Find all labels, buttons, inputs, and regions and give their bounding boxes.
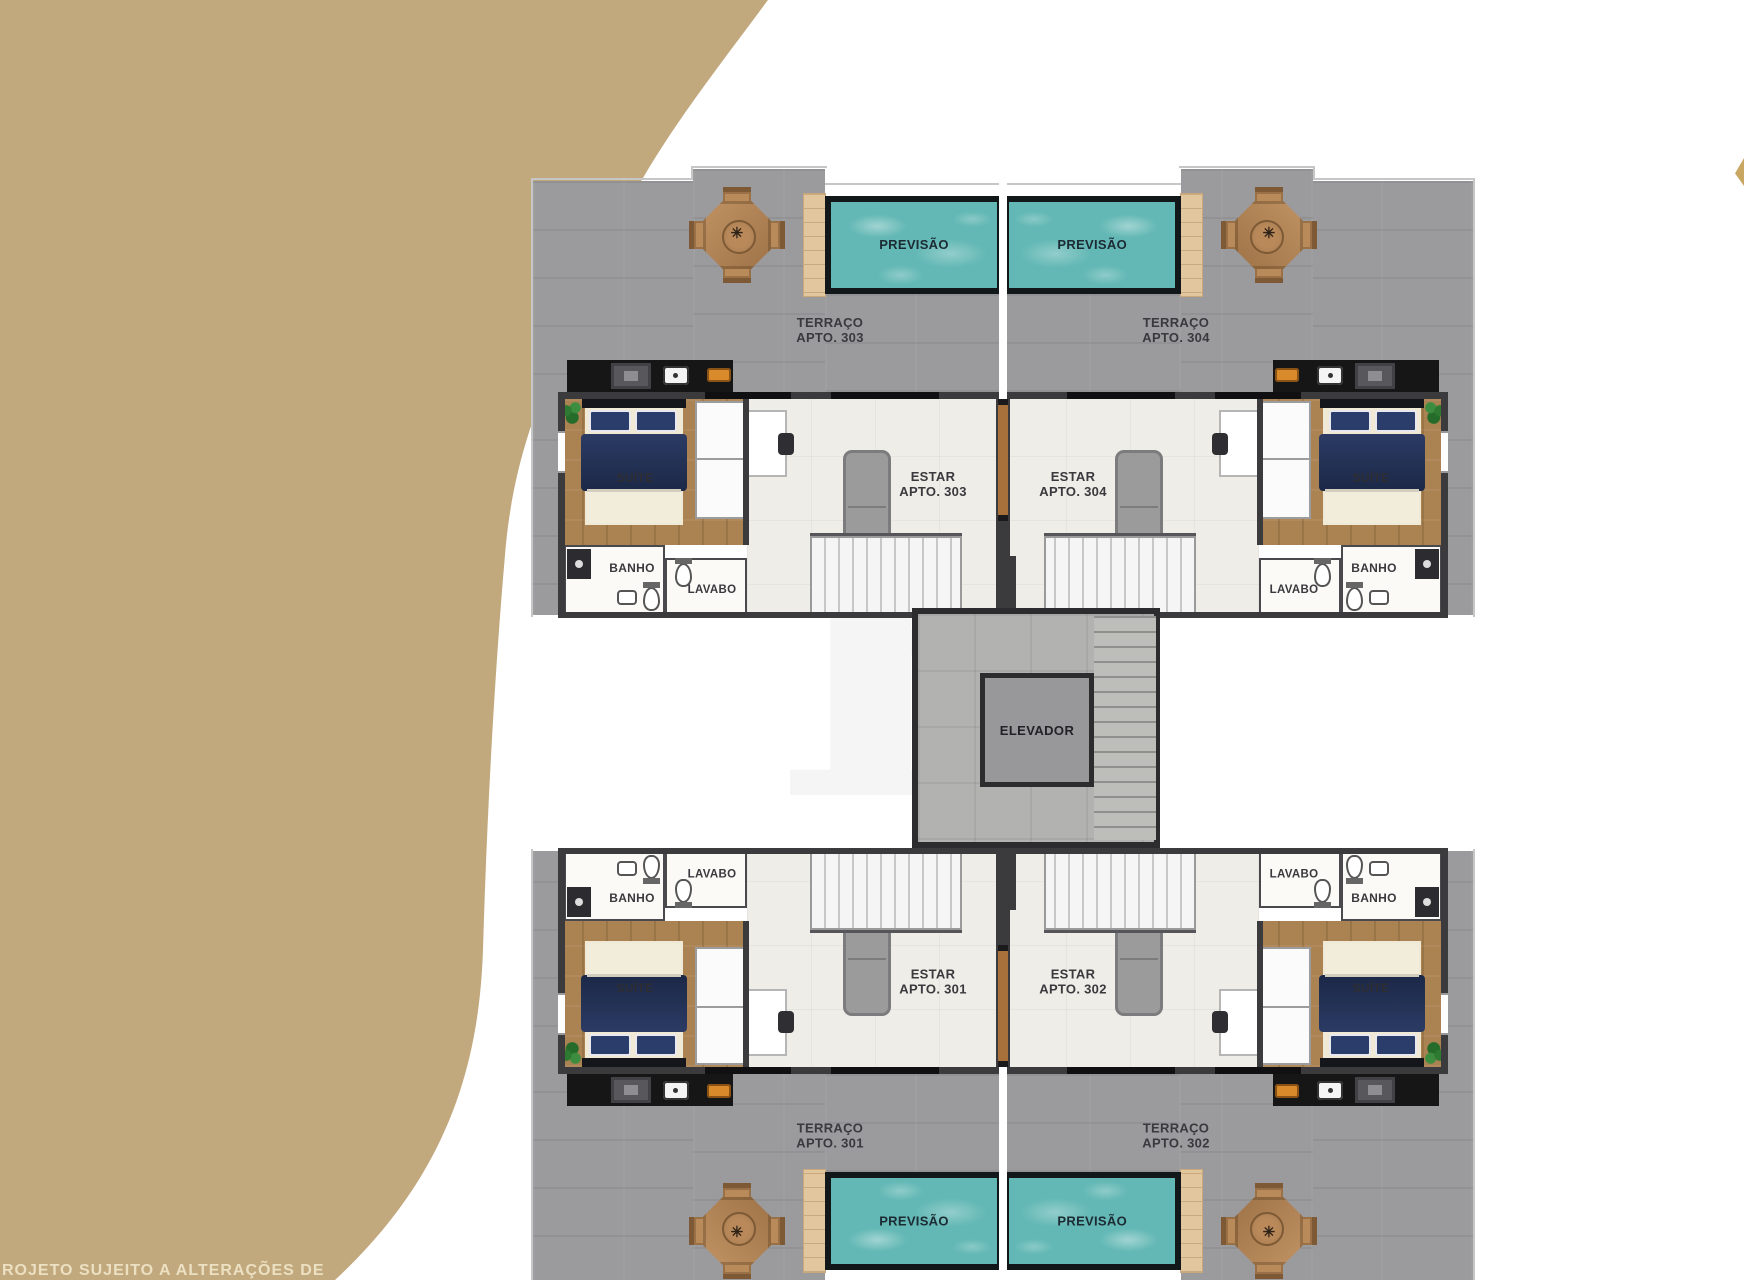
wall <box>1003 848 1448 854</box>
glass-door <box>705 1067 791 1074</box>
pool-label: PREVISÃO <box>1057 237 1127 252</box>
desk-chair-icon <box>1212 433 1228 455</box>
terrace-floor <box>533 851 558 1075</box>
bed-sheet <box>1325 489 1419 523</box>
powder-room-label: LAVABO <box>677 584 747 598</box>
window <box>558 993 565 1035</box>
pillow <box>1375 1034 1417 1056</box>
pool: PREVISÃO <box>1003 196 1181 294</box>
powder-room-label: LAVABO <box>1259 584 1329 598</box>
terrace-label-line1: TERRAÇO <box>755 315 905 330</box>
toilet-icon <box>1346 587 1363 611</box>
desk-chair-icon <box>778 433 794 455</box>
plan-edge <box>1473 849 1475 1280</box>
terrace-label: TERRAÇO APTO. 301 <box>755 1120 905 1151</box>
plan-edge <box>1179 166 1315 168</box>
powder-room-label: LAVABO <box>677 868 747 882</box>
glass-door <box>1067 1067 1175 1074</box>
bed-icon <box>585 401 683 525</box>
stove-icon <box>1275 368 1299 382</box>
plan-edge <box>691 166 827 168</box>
sink-icon <box>1317 1081 1343 1100</box>
shower-icon <box>567 549 591 579</box>
suite-label: SUÍTE <box>583 981 687 995</box>
pool: PREVISÃO <box>1003 1172 1181 1270</box>
pool-deck <box>1181 1170 1202 1272</box>
party-wall-door <box>998 951 1008 1061</box>
pillow <box>589 410 631 432</box>
outdoor-kitchen-counter <box>567 360 733 392</box>
plan-edge <box>691 166 693 180</box>
bathroom-label: BANHO <box>1339 891 1409 905</box>
estar-label-line2: APTO. 301 <box>863 982 1003 997</box>
elevator-label: ELEVADOR <box>1000 723 1074 738</box>
terrace-label-line2: APTO. 303 <box>755 330 905 345</box>
pool-label: PREVISÃO <box>879 237 949 252</box>
pillow <box>1375 410 1417 432</box>
plan-edge <box>825 183 1003 185</box>
wall <box>1257 399 1263 545</box>
table-centerpiece-icon: ✳ <box>689 1225 785 1240</box>
pool-label: PREVISÃO <box>879 1213 949 1228</box>
estar-label-line1: ESTAR <box>863 966 1003 981</box>
bathroom-label: BANHO <box>1339 561 1409 575</box>
wardrobe-icon <box>695 947 745 1065</box>
table-centerpiece-icon: ✳ <box>1221 226 1317 241</box>
pillow <box>1329 410 1371 432</box>
pillow <box>1329 1034 1371 1056</box>
cabinet-icon <box>611 363 651 389</box>
estar-label-line1: ESTAR <box>1003 966 1143 981</box>
glass-door <box>705 392 791 399</box>
estar-label-line2: APTO. 303 <box>863 484 1003 499</box>
shower-icon <box>1415 549 1439 579</box>
sink-icon <box>663 1081 689 1100</box>
outdoor-kitchen-counter <box>567 1074 733 1106</box>
terrace-floor <box>1448 851 1473 1075</box>
glass-door <box>1067 392 1175 399</box>
estar-label-line2: APTO. 302 <box>1003 982 1143 997</box>
sink-icon <box>617 590 637 605</box>
glass-door <box>831 1067 939 1074</box>
pillow <box>635 410 677 432</box>
floor-plan-page: ROJETO SUJEITO A ALTERAÇÕES DE R PREVISÃ… <box>0 0 1744 1280</box>
headboard <box>582 398 686 408</box>
window <box>1441 993 1448 1035</box>
headboard <box>1320 398 1424 408</box>
plan-edge <box>1473 178 1475 617</box>
footer-disclaimer-text: ROJETO SUJEITO A ALTERAÇÕES DE <box>2 1262 325 1280</box>
pillow <box>589 1034 631 1056</box>
living-room-label: ESTAR APTO. 303 <box>863 469 1003 500</box>
cabinet-icon <box>611 1077 651 1103</box>
suite-label: SUÍTE <box>1319 981 1423 995</box>
bed-icon <box>1323 941 1421 1065</box>
bathroom-label: BANHO <box>597 891 667 905</box>
stove-icon <box>1275 1084 1299 1098</box>
window <box>558 431 565 473</box>
glass-door <box>1215 1067 1301 1074</box>
terrace-label-line1: TERRAÇO <box>1101 1120 1251 1135</box>
terrace-label-line2: APTO. 304 <box>1101 330 1251 345</box>
suite-label: SUÍTE <box>1319 471 1423 485</box>
staircase <box>1044 851 1196 933</box>
desk-chair-icon <box>778 1011 794 1033</box>
wall <box>1000 556 1016 614</box>
plan-edge <box>531 178 693 180</box>
stove-icon <box>707 1084 731 1098</box>
elevator-core: ELEVADOR <box>912 608 1160 848</box>
terrace-floor <box>533 391 558 615</box>
sink-icon <box>1369 590 1389 605</box>
estar-label-line1: ESTAR <box>1003 469 1143 484</box>
toilet-icon <box>643 587 660 611</box>
wardrobe-icon <box>695 401 745 519</box>
elevator-shaft: ELEVADOR <box>980 673 1094 787</box>
pool-deck <box>1181 194 1202 296</box>
terrace-label-line1: TERRAÇO <box>1101 315 1251 330</box>
powder-room-label: LAVABO <box>1259 868 1329 882</box>
sink-icon <box>1317 366 1343 385</box>
glass-door <box>1215 392 1301 399</box>
dining-table-icon: ✳ <box>689 187 785 283</box>
cabinet-icon <box>1355 363 1395 389</box>
dining-table-icon: ✳ <box>1221 1183 1317 1279</box>
staircase <box>810 533 962 615</box>
glass-door <box>831 392 939 399</box>
bed-sheet <box>1325 943 1419 977</box>
dining-table-icon: ✳ <box>1221 187 1317 283</box>
estar-label-line2: APTO. 304 <box>1003 484 1143 499</box>
unit-divider-line <box>999 1064 1007 1280</box>
shower-icon <box>1415 887 1439 917</box>
pillow <box>635 1034 677 1056</box>
sink-icon <box>1369 861 1389 876</box>
wall <box>558 848 565 1074</box>
wall <box>743 399 749 545</box>
bed-sheet <box>587 943 681 977</box>
wall <box>558 392 565 618</box>
table-centerpiece-icon: ✳ <box>689 226 785 241</box>
stairwell-treads <box>1094 616 1156 840</box>
terrace-label: TERRAÇO APTO. 304 <box>1101 315 1251 346</box>
terrace-label-line2: APTO. 301 <box>755 1136 905 1151</box>
wardrobe-icon <box>1261 401 1311 519</box>
pool: PREVISÃO <box>825 196 1003 294</box>
plan-edge <box>1313 166 1315 180</box>
wall <box>743 921 749 1067</box>
wall <box>1257 921 1263 1067</box>
living-room-label: ESTAR APTO. 301 <box>863 966 1003 997</box>
pool-label: PREVISÃO <box>1057 1213 1127 1228</box>
terrace-label-line1: TERRAÇO <box>755 1120 905 1135</box>
terrace-label: TERRAÇO APTO. 302 <box>1101 1120 1251 1151</box>
living-room-label: ESTAR APTO. 302 <box>1003 966 1143 997</box>
terrace-floor <box>1448 391 1473 615</box>
outdoor-kitchen-counter <box>1273 1074 1439 1106</box>
table-centerpiece-icon: ✳ <box>1221 1225 1317 1240</box>
staircase <box>1044 533 1196 615</box>
shower-icon <box>567 887 591 917</box>
sink-icon <box>663 366 689 385</box>
wall <box>1000 852 1016 910</box>
suite-label: SUÍTE <box>583 471 687 485</box>
outdoor-kitchen-counter <box>1273 360 1439 392</box>
bathroom-label: BANHO <box>597 561 667 575</box>
living-room-label: ESTAR APTO. 304 <box>1003 469 1143 500</box>
wall <box>1441 392 1448 618</box>
staircase <box>810 851 962 933</box>
plan-edge <box>531 849 533 1280</box>
pool: PREVISÃO <box>825 1172 1003 1270</box>
wall <box>558 848 1003 854</box>
bed-icon <box>1323 401 1421 525</box>
wardrobe-icon <box>1261 947 1311 1065</box>
stove-icon <box>707 368 731 382</box>
page-edge-ornament <box>1735 158 1744 186</box>
bed-icon <box>585 941 683 1065</box>
unit-divider-line <box>999 168 1007 400</box>
desk-chair-icon <box>1212 1011 1228 1033</box>
terrace-label: TERRAÇO APTO. 303 <box>755 315 905 346</box>
party-wall-door <box>998 405 1008 515</box>
plan-edge <box>1003 183 1181 185</box>
sink-icon <box>617 861 637 876</box>
terrace-label-line2: APTO. 302 <box>1101 1136 1251 1151</box>
pool-deck <box>804 1170 825 1272</box>
window <box>1441 431 1448 473</box>
plan-edge <box>1313 178 1475 180</box>
pool-deck <box>804 194 825 296</box>
estar-label-line1: ESTAR <box>863 469 1003 484</box>
cabinet-icon <box>1355 1077 1395 1103</box>
bed-sheet <box>587 489 681 523</box>
dining-table-icon: ✳ <box>689 1183 785 1279</box>
wall <box>1441 848 1448 1074</box>
plan-edge <box>531 178 533 617</box>
